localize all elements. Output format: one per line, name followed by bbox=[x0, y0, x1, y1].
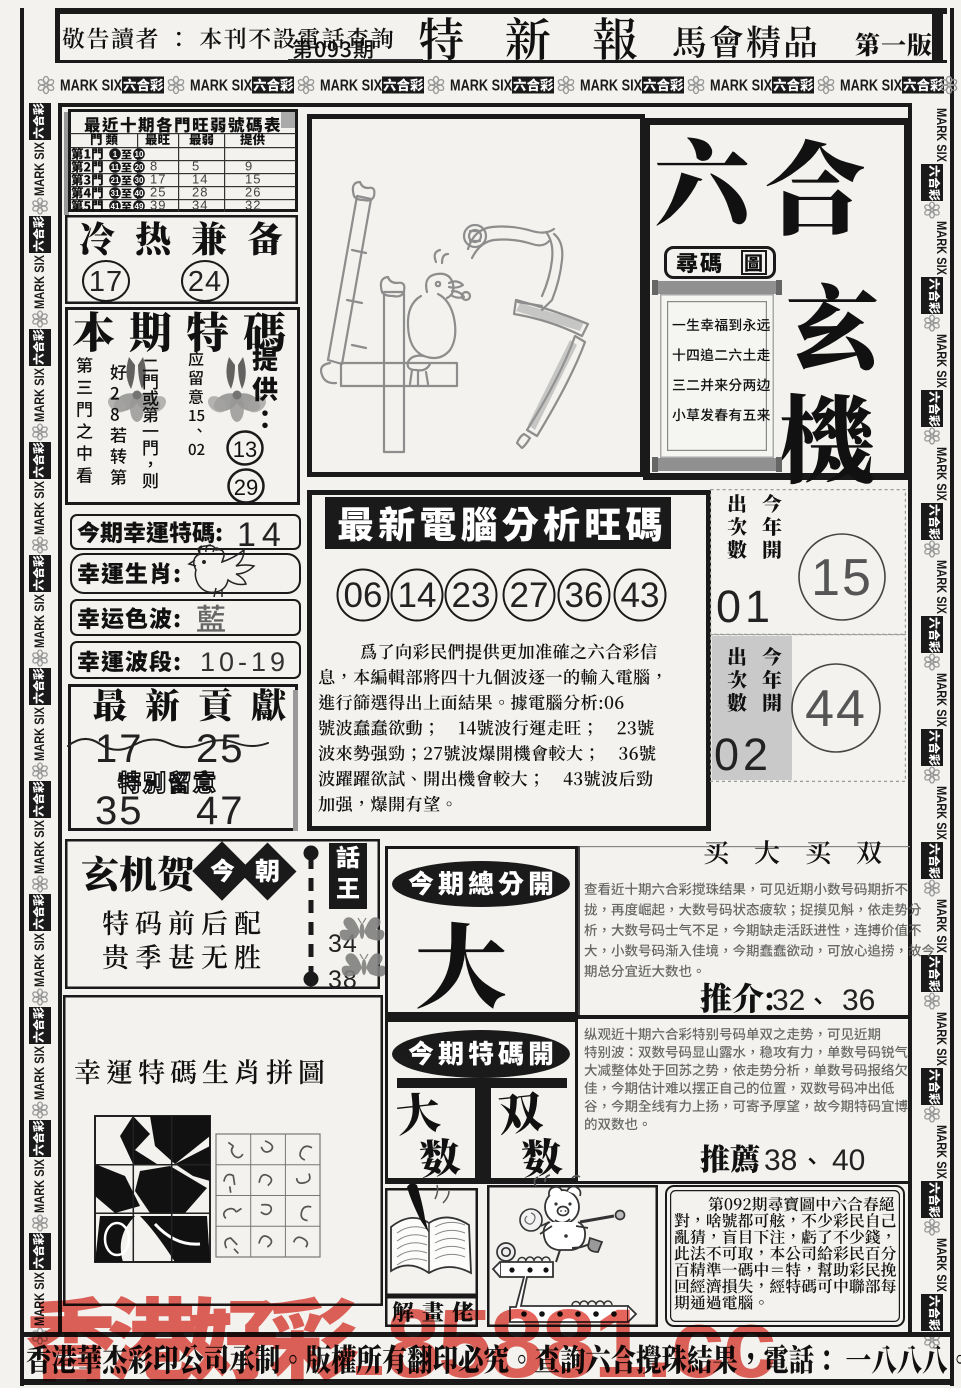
svg-text:39: 39 bbox=[150, 198, 166, 213]
svg-text:MARK SIX: MARK SIX bbox=[934, 899, 949, 954]
svg-text:13: 13 bbox=[233, 437, 257, 462]
svg-text:MARK SIX: MARK SIX bbox=[32, 932, 47, 987]
svg-text:MARK SIX: MARK SIX bbox=[840, 77, 903, 94]
svg-text:11: 11 bbox=[111, 163, 120, 172]
svg-text:MARK SIX: MARK SIX bbox=[934, 447, 949, 502]
svg-text:06: 06 bbox=[344, 576, 383, 615]
svg-text:35: 35 bbox=[95, 789, 144, 833]
svg-text:49: 49 bbox=[135, 202, 144, 211]
svg-text:20: 20 bbox=[135, 163, 144, 172]
svg-text:32: 32 bbox=[245, 198, 261, 213]
svg-text:23: 23 bbox=[452, 576, 491, 615]
svg-text:MARK SIX: MARK SIX bbox=[32, 480, 47, 535]
svg-text:29: 29 bbox=[234, 475, 258, 500]
svg-text:10: 10 bbox=[135, 150, 144, 159]
svg-text:32: 32 bbox=[772, 984, 805, 1017]
svg-text:MARK SIX: MARK SIX bbox=[934, 334, 949, 389]
svg-text:MARK SIX: MARK SIX bbox=[32, 819, 47, 874]
svg-text:31: 31 bbox=[111, 189, 120, 198]
svg-text:14: 14 bbox=[398, 576, 437, 615]
svg-text:47: 47 bbox=[196, 789, 245, 833]
svg-text:36: 36 bbox=[842, 984, 875, 1017]
svg-text:27: 27 bbox=[510, 576, 549, 615]
svg-text:MARK SIX: MARK SIX bbox=[450, 77, 513, 94]
svg-text:15: 15 bbox=[811, 549, 873, 607]
svg-text:MARK SIX: MARK SIX bbox=[190, 77, 253, 94]
svg-text:02: 02 bbox=[714, 729, 772, 780]
svg-text:MARK SIX: MARK SIX bbox=[32, 593, 47, 648]
svg-text:43: 43 bbox=[621, 576, 660, 615]
svg-text:36: 36 bbox=[565, 576, 604, 615]
svg-text:41: 41 bbox=[111, 202, 120, 211]
svg-text:MARK SIX: MARK SIX bbox=[934, 221, 949, 276]
svg-text:MARK SIX: MARK SIX bbox=[934, 1238, 949, 1293]
svg-text:40: 40 bbox=[832, 1144, 865, 1177]
svg-text:MARK SIX: MARK SIX bbox=[580, 77, 643, 94]
svg-text:MARK SIX: MARK SIX bbox=[934, 1125, 949, 1180]
svg-text:34: 34 bbox=[192, 198, 208, 213]
svg-text:1: 1 bbox=[113, 150, 118, 159]
svg-text:MARK SIX: MARK SIX bbox=[32, 141, 47, 196]
svg-text:MARK SIX: MARK SIX bbox=[934, 560, 949, 615]
svg-text:30: 30 bbox=[135, 176, 144, 185]
svg-text:01: 01 bbox=[716, 581, 774, 632]
svg-text:MARK SIX: MARK SIX bbox=[710, 77, 773, 94]
svg-text:MARK SIX: MARK SIX bbox=[32, 706, 47, 761]
svg-text:24: 24 bbox=[188, 266, 222, 298]
svg-text:14: 14 bbox=[237, 516, 287, 554]
svg-text:10-19: 10-19 bbox=[200, 647, 289, 677]
svg-text:MARK SIX: MARK SIX bbox=[934, 673, 949, 728]
svg-text:MARK SIX: MARK SIX bbox=[32, 1045, 47, 1100]
svg-text:38: 38 bbox=[764, 1144, 797, 1177]
svg-text:85881.cc: 85881.cc bbox=[386, 1289, 775, 1388]
svg-text:44: 44 bbox=[805, 680, 867, 738]
svg-text:17: 17 bbox=[89, 266, 123, 298]
svg-text:MARK SIX: MARK SIX bbox=[60, 77, 123, 94]
svg-text:25: 25 bbox=[196, 727, 245, 771]
svg-text:MARK SIX: MARK SIX bbox=[934, 1012, 949, 1067]
svg-text:21: 21 bbox=[111, 176, 120, 185]
svg-text:MARK SIX: MARK SIX bbox=[320, 77, 383, 94]
svg-text:MARK SIX: MARK SIX bbox=[32, 367, 47, 422]
svg-text:MARK SIX: MARK SIX bbox=[934, 786, 949, 841]
svg-text:40: 40 bbox=[135, 189, 144, 198]
svg-text:MARK SIX: MARK SIX bbox=[32, 254, 47, 309]
svg-text:MARK SIX: MARK SIX bbox=[934, 108, 949, 163]
svg-text:MARK SIX: MARK SIX bbox=[32, 1158, 47, 1213]
